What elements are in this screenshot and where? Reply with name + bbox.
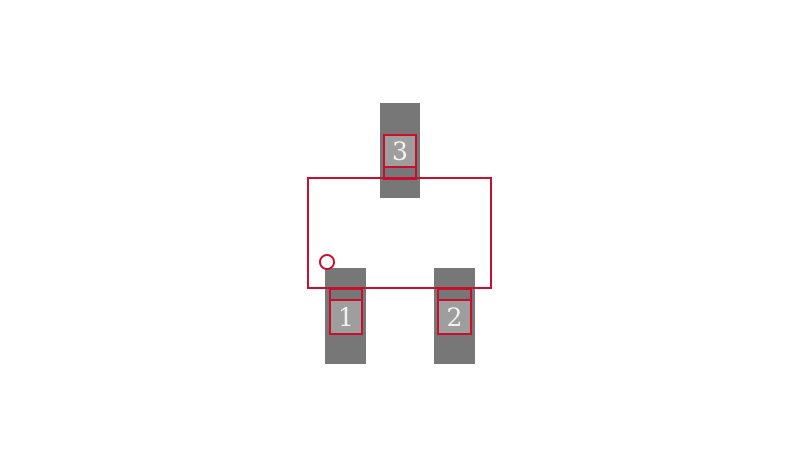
pin-3-paste: 3 bbox=[385, 136, 415, 166]
component-body-outline bbox=[307, 177, 492, 289]
pin-3-inner-edge bbox=[385, 166, 415, 168]
pin-3-label: 3 bbox=[392, 139, 408, 164]
footprint-canvas: 3 1 2 bbox=[0, 0, 800, 468]
pin-2-outline: 2 bbox=[437, 288, 472, 335]
pin-1-paste: 1 bbox=[331, 301, 361, 333]
pin-2-label: 2 bbox=[447, 305, 463, 330]
pin-1-label: 1 bbox=[338, 305, 354, 330]
pin-1-indicator-circle bbox=[319, 254, 335, 270]
pin-1-outline: 1 bbox=[329, 288, 363, 335]
pin-2-paste: 2 bbox=[439, 301, 470, 333]
pin-3-outline: 3 bbox=[383, 134, 417, 180]
